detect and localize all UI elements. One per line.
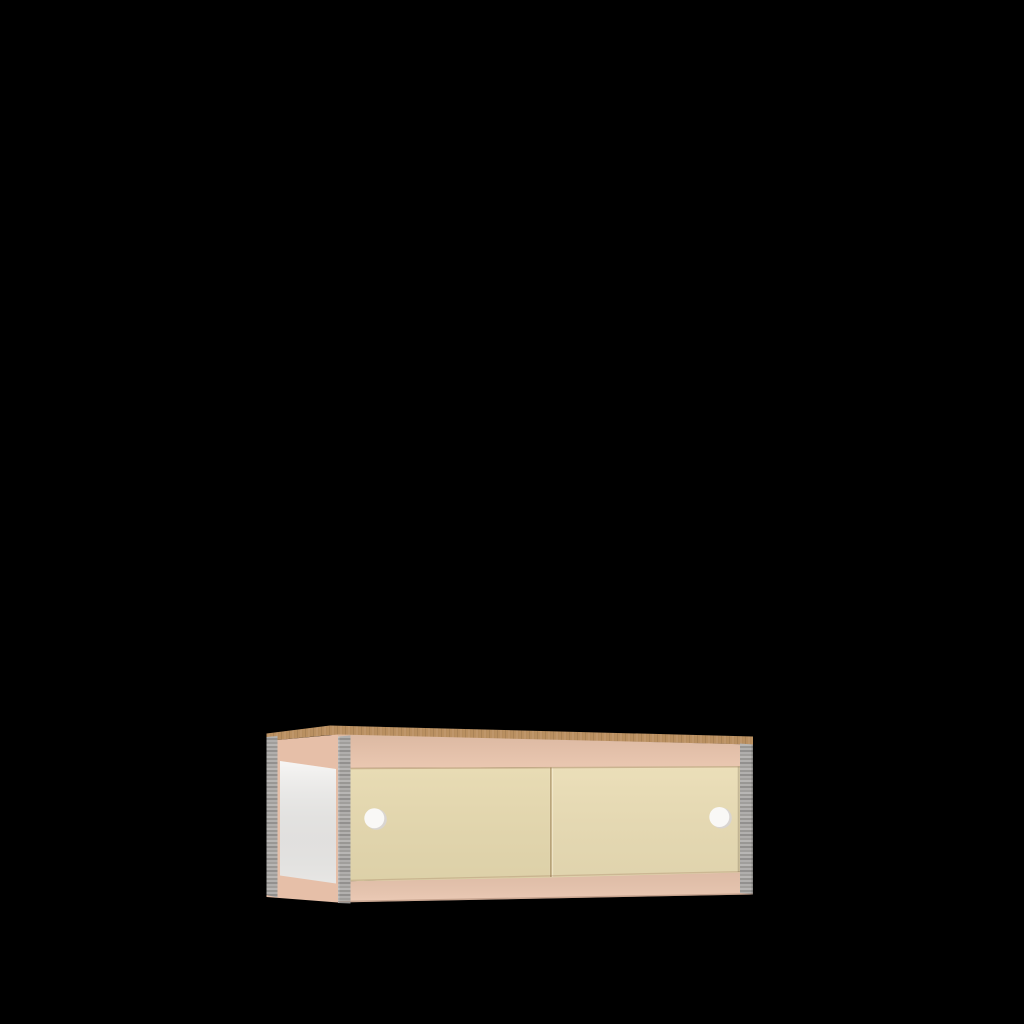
right-door-handle-face — [709, 807, 729, 827]
cabinet-side-panel-shading — [280, 761, 336, 884]
render-viewport — [0, 0, 1024, 1024]
edge-banding-right-texture — [740, 744, 753, 895]
left-door-handle-face — [364, 808, 384, 828]
edge-banding-corner-texture — [338, 736, 351, 904]
edge-banding-left-texture — [267, 736, 278, 898]
cabinet — [267, 726, 754, 904]
cabinet-render — [0, 0, 1024, 1024]
